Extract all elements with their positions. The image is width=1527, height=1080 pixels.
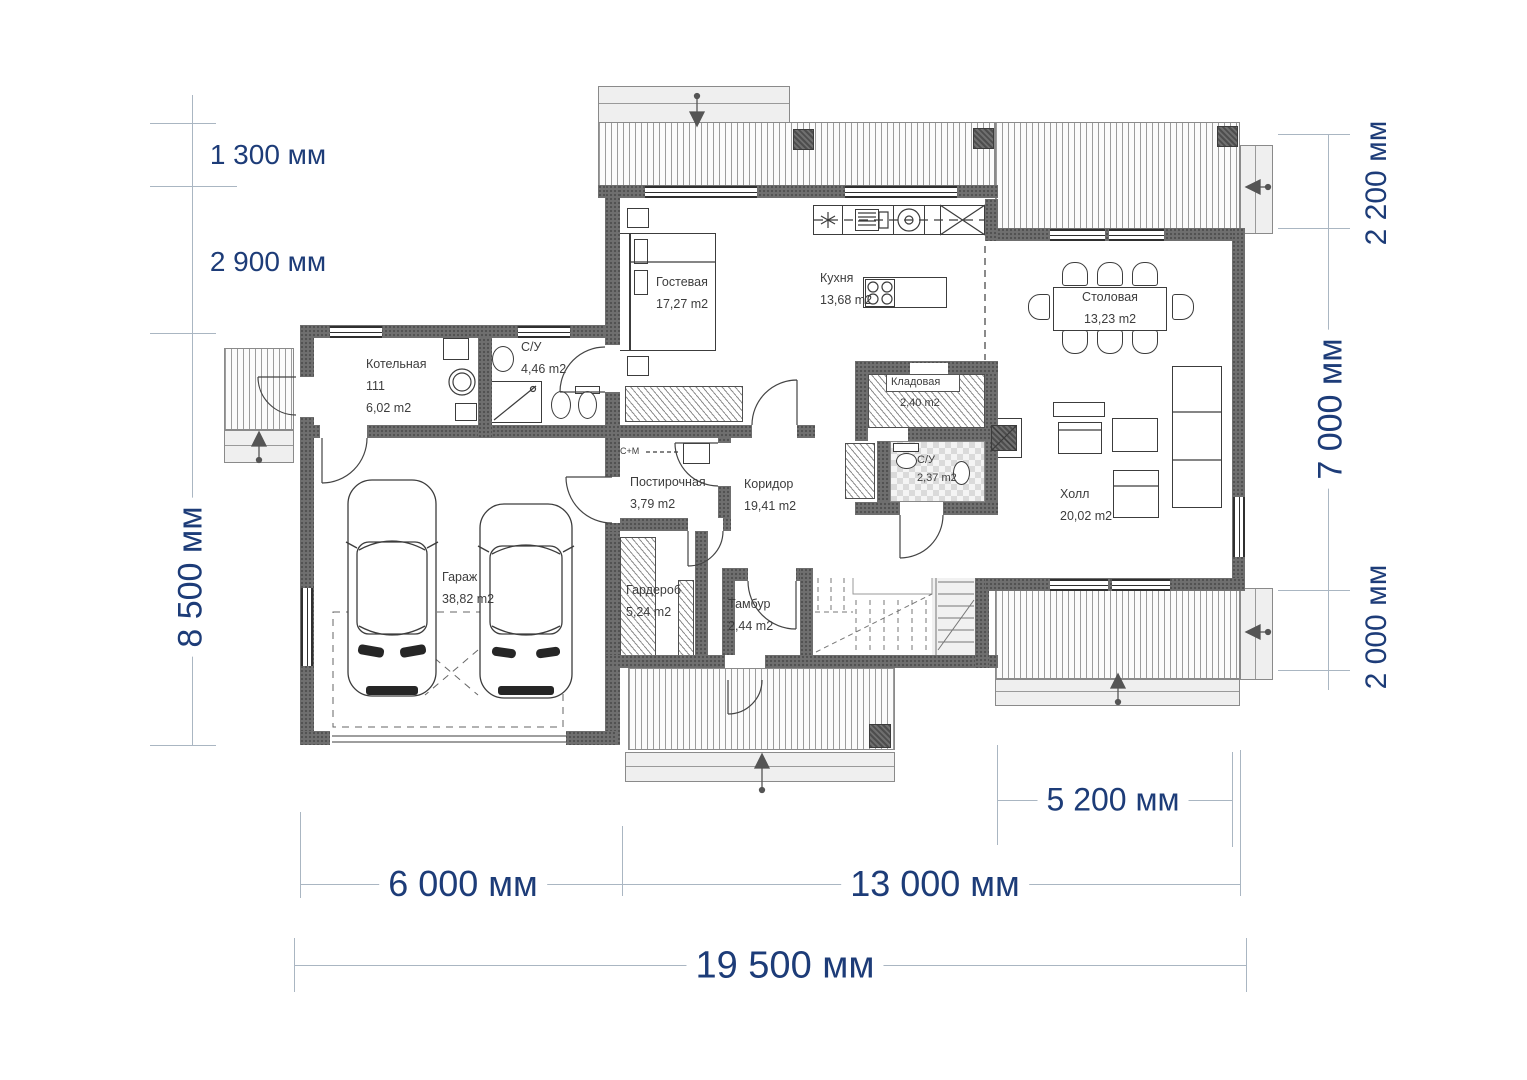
room-label-dining: Столовая 13,23 m2 [1053, 291, 1167, 326]
washer-dryer-label: С+М [620, 447, 639, 456]
room-label-hall: Холл 20,02 m2 [1060, 488, 1112, 523]
room-label-laundry: Постирочная 3,79 m2 [630, 476, 706, 511]
room-label-bath1: С/У 4,46 m2 [521, 341, 566, 376]
room-label-kitchen: Кухня 13,68 m2 [820, 272, 872, 307]
room-label-pantry: Кладовая [886, 374, 960, 392]
dimension-bottom-main: 13 000 мм [841, 862, 1029, 906]
room-label-boiler: Котельная 111 6,02 m2 [366, 358, 427, 415]
room-label-vestibule: Тамбур 2,44 m2 [728, 598, 773, 633]
room-label-wardrobe: Гардероб 5,24 m2 [626, 584, 681, 619]
room-area-pantry: 2,40 m2 [900, 398, 940, 410]
dimension-right-bottom: 2 000 мм [1359, 556, 1395, 699]
room-label-corridor: Коридор 19,41 m2 [744, 478, 796, 513]
floor-plan: Котельная 111 6,02 m2 С/У 4,46 m2 Гостев… [0, 0, 1527, 1080]
dimension-left-top: 1 300 мм [201, 138, 335, 172]
room-label-guest: Гостевая 17,27 m2 [656, 276, 708, 311]
dimension-bottom-total: 19 500 мм [686, 944, 883, 989]
dimension-bottom-garage: 6 000 мм [379, 862, 547, 906]
dimension-right-main: 7 000 мм [1311, 329, 1352, 488]
room-label-garage: Гараж 38,82 m2 [442, 571, 494, 606]
dimension-bottom-terrace: 5 200 мм [1038, 781, 1189, 820]
stairs [815, 578, 974, 655]
room-label-bath2: С/У 2,37 m2 [917, 455, 957, 484]
dimension-left-mid: 2 900 мм [201, 245, 335, 279]
dimension-right-top: 2 200 мм [1359, 112, 1395, 255]
car-icon [346, 480, 438, 696]
dimension-left-main: 8 500 мм [171, 497, 212, 656]
